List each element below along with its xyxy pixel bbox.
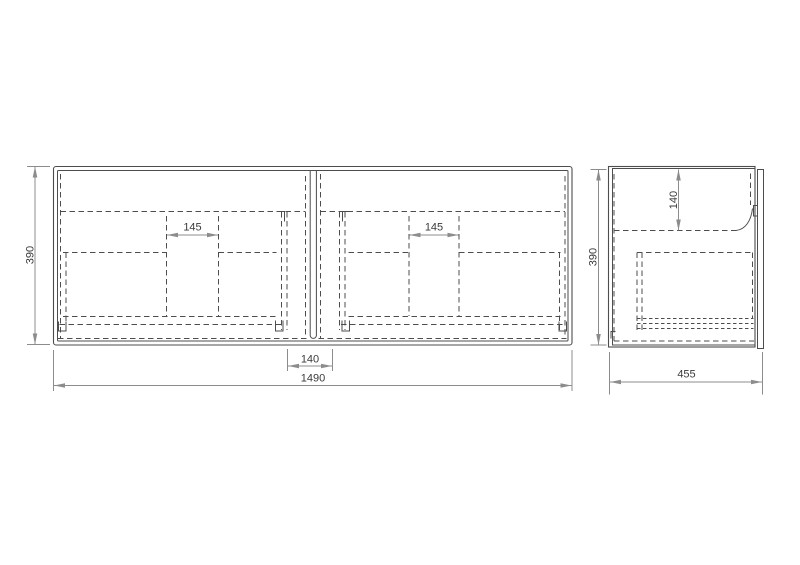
front-hardware-marks [59, 212, 567, 332]
side-outer-frame [609, 167, 756, 348]
side-hidden-lines [614, 174, 754, 342]
dim-front-handle-gap-left-label: 145 [183, 222, 201, 234]
side-door-swing-curve [736, 209, 753, 231]
cabinet-technical-drawing: 390 1490 140 145 145 390 140 455 [0, 0, 800, 565]
front-view [54, 167, 573, 346]
front-outer-frame [54, 167, 573, 346]
right-door-hidden-lines [319, 174, 567, 339]
dim-side-depth: 455 [610, 352, 763, 395]
side-view [609, 167, 764, 349]
side-door-panel [758, 170, 764, 349]
dim-side-height: 390 [588, 170, 607, 346]
left-door-hidden-lines [58, 174, 307, 339]
drawing-canvas: 390 1490 140 145 145 390 140 455 [0, 0, 800, 565]
dim-side-top-panel-depth: 140 [668, 170, 680, 231]
dim-side-depth-label: 455 [677, 369, 695, 381]
dim-front-width-label: 1490 [301, 373, 325, 385]
front-inner-frame [58, 171, 569, 342]
dim-side-height-label: 390 [588, 248, 600, 266]
dim-side-top-panel-depth-label: 140 [668, 191, 680, 209]
dim-front-handle-gap-right: 145 [410, 222, 459, 236]
side-bottom-step [611, 332, 616, 339]
dim-front-height: 390 [25, 167, 51, 345]
dim-front-handle-gap-left: 145 [167, 222, 218, 236]
side-drawer-bottom-lines [637, 319, 754, 329]
dim-front-handle-gap-right-label: 145 [425, 222, 443, 234]
dim-front-center-gap-label: 140 [301, 354, 319, 366]
dim-front-height-label: 390 [25, 246, 37, 264]
dim-front-center-gap: 140 [288, 349, 333, 371]
center-divider [310, 171, 316, 339]
